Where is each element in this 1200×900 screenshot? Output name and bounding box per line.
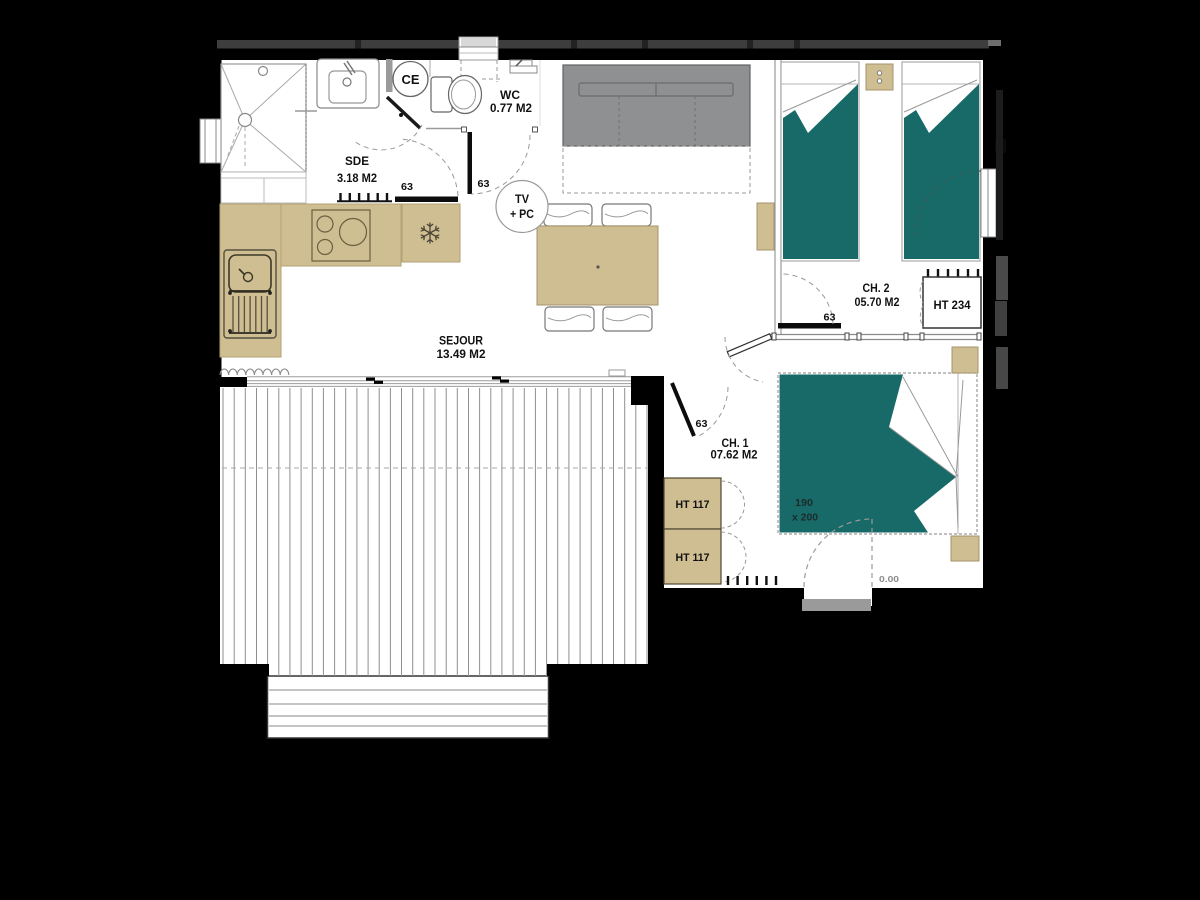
svg-text:WC: WC <box>500 88 520 102</box>
svg-text:HT 117: HT 117 <box>676 552 710 564</box>
svg-text:CE: CE <box>402 73 420 87</box>
svg-text:63: 63 <box>401 181 413 193</box>
svg-text:07.62 M2: 07.62 M2 <box>711 448 758 462</box>
svg-text:190: 190 <box>795 498 813 509</box>
svg-text:+ PC: + PC <box>510 209 534 221</box>
svg-text:63: 63 <box>696 418 708 430</box>
svg-text:SEJOUR: SEJOUR <box>439 334 483 348</box>
svg-text:63: 63 <box>478 178 490 190</box>
svg-text:63: 63 <box>824 312 836 324</box>
svg-text:HT 234: HT 234 <box>934 300 972 312</box>
svg-text:0.00: 0.00 <box>879 575 900 584</box>
svg-text:HT 117: HT 117 <box>676 499 710 511</box>
svg-text:TV: TV <box>515 194 529 206</box>
svg-text:0.77 M2: 0.77 M2 <box>490 101 532 115</box>
svg-text:CH. 2: CH. 2 <box>863 281 890 295</box>
svg-text:05.70 M2: 05.70 M2 <box>855 295 900 309</box>
svg-text:SDE: SDE <box>345 154 369 168</box>
svg-text:x 200: x 200 <box>792 513 818 524</box>
svg-text:13.49 M2: 13.49 M2 <box>437 347 486 361</box>
svg-text:3.18 M2: 3.18 M2 <box>337 171 377 185</box>
